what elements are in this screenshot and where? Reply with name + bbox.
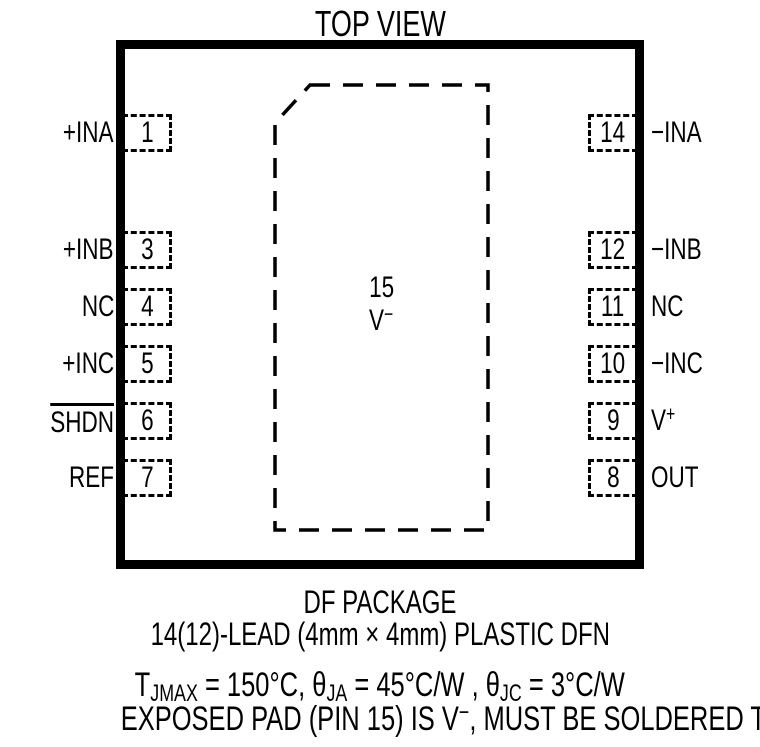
pin-8-box: 8	[588, 459, 638, 497]
pin-9-box: 9	[588, 402, 638, 440]
pin-12-number: 12	[600, 233, 625, 267]
thermal-t: T	[135, 666, 151, 704]
thermal-seg3: = 3°C/W	[522, 666, 625, 704]
pin-10-box: 10	[588, 345, 638, 383]
thermal-seg1: = 150°C,	[198, 666, 312, 704]
pin-9-label-sup: +	[666, 403, 675, 426]
pin-row-9: 9 V+	[0, 402, 760, 440]
exposed-sup: −	[459, 699, 469, 726]
exposed-post: , MUST BE SOLDERED TO PCB	[469, 700, 760, 738]
pin-9-label-text: V	[651, 404, 666, 437]
exposed-pre: EXPOSED PAD (PIN 15) IS V	[121, 700, 459, 738]
caption-package-desc: 14(12)-LEAD (4mm × 4mm) PLASTIC DFN	[0, 616, 760, 653]
pin-row-11: 11 NC	[0, 288, 760, 326]
diagram-title-text: TOP VIEW	[314, 3, 445, 45]
pin-row-10: 10 −INC	[0, 345, 760, 383]
pin-8-number: 8	[607, 461, 620, 495]
pin-10-label-text: −INC	[651, 347, 703, 380]
pin-row-12: 12 −INB	[0, 231, 760, 269]
pin-9-label: V+	[651, 402, 760, 440]
pin-14-label: −INA	[651, 114, 760, 152]
pin-row-8: 8 OUT	[0, 459, 760, 497]
pinout-diagram: TOP VIEW 15 V− +INA 1 +INB 3 NC 4 +INC 5…	[0, 0, 760, 747]
pin-8-label: OUT	[651, 459, 760, 497]
pin-9-number: 9	[607, 404, 620, 438]
caption-exposed-pad: EXPOSED PAD (PIN 15) IS V−, MUST BE SOLD…	[0, 700, 760, 739]
pin-12-box: 12	[588, 231, 638, 269]
pin-14-box: 14	[588, 114, 638, 152]
pin-row-14: 14 −INA	[0, 114, 760, 152]
thermal-theta2: θ	[486, 666, 500, 704]
pin-11-label: NC	[651, 288, 760, 326]
diagram-title: TOP VIEW	[0, 3, 760, 45]
pin-11-number: 11	[601, 290, 624, 324]
pin-10-number: 10	[600, 347, 625, 381]
thermal-theta1: θ	[313, 666, 327, 704]
pin-12-label-text: −INB	[651, 233, 702, 266]
pin-14-label-text: −INA	[651, 116, 702, 149]
pin-11-label-text: NC	[651, 290, 684, 323]
pin-14-number: 14	[600, 116, 625, 150]
pin-11-box: 11	[588, 288, 638, 326]
pin-8-label-text: OUT	[651, 461, 698, 494]
pin-12-label: −INB	[651, 231, 760, 269]
pin-10-label: −INC	[651, 345, 760, 383]
